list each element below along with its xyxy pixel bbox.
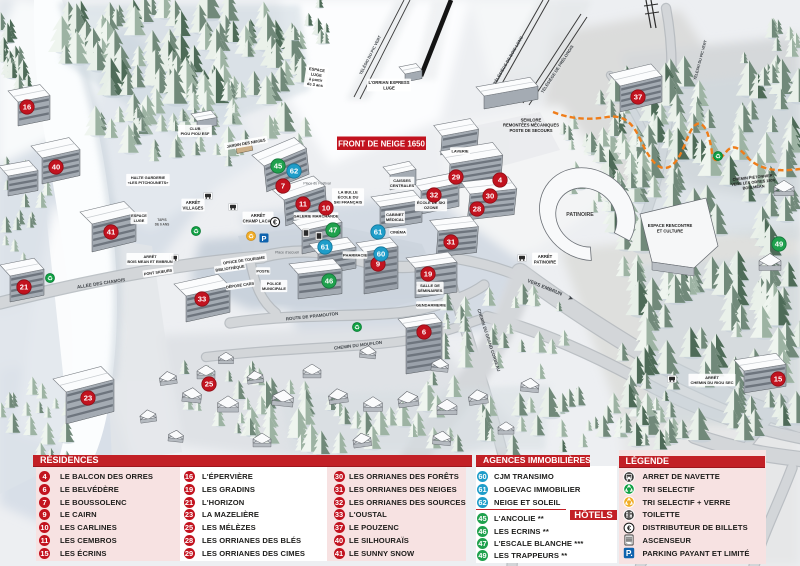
svg-text:MÉDICAL: MÉDICAL (386, 217, 405, 222)
svg-text:MUNICIPALE: MUNICIPALE (262, 286, 286, 291)
svg-text:♻: ♻ (248, 234, 254, 241)
svg-text:SÉMINAIRES: SÉMINAIRES (418, 288, 443, 293)
svg-text:CINÉMA: CINÉMA (390, 230, 406, 235)
svg-text:OZONE: OZONE (424, 205, 439, 210)
svg-text:LUGE: LUGE (134, 218, 145, 223)
svg-text:46: 46 (325, 277, 333, 286)
svg-text:P: P (262, 234, 267, 243)
svg-text:7: 7 (281, 182, 285, 191)
svg-text:POSTE: POSTE (256, 269, 270, 274)
svg-text:VILLAGES: VILLAGES (183, 205, 204, 210)
svg-text:«LES PITCHOUNETS»: «LES PITCHOUNETS» (128, 180, 169, 185)
svg-text:CHAMP LACAS: CHAMP LACAS (243, 218, 274, 223)
svg-text:ET CULTURE: ET CULTURE (657, 228, 683, 233)
svg-text:40: 40 (52, 163, 60, 172)
svg-text:Place du Festival: Place du Festival (303, 182, 331, 186)
svg-text:♻: ♻ (715, 154, 721, 161)
svg-text:LUGE: LUGE (383, 85, 395, 90)
svg-text:60: 60 (377, 250, 385, 259)
svg-text:47: 47 (329, 226, 337, 235)
svg-text:€: € (627, 523, 631, 532)
svg-text:15: 15 (774, 375, 783, 384)
svg-text:37: 37 (634, 93, 642, 102)
svg-text:11: 11 (299, 200, 308, 209)
svg-text:23: 23 (84, 394, 92, 403)
svg-text:DE 6 ANS: DE 6 ANS (155, 222, 170, 226)
svg-text:6: 6 (422, 328, 426, 337)
svg-text:CHEMIN DU RIOU SEC: CHEMIN DU RIOU SEC (690, 380, 733, 385)
svg-text:POSTE DE SECOURS: POSTE DE SECOURS (509, 128, 552, 133)
svg-text:PATINOIRE: PATINOIRE (534, 259, 556, 264)
svg-text:29: 29 (452, 173, 460, 182)
svg-text:GALERIE MARCHANDE: GALERIE MARCHANDE (293, 214, 338, 219)
svg-text:33: 33 (198, 295, 206, 304)
svg-text:BOIS MEAN ET EMBRUN: BOIS MEAN ET EMBRUN (127, 260, 172, 264)
svg-text:♻: ♻ (47, 276, 53, 283)
svg-text:32: 32 (430, 191, 438, 200)
svg-text:21: 21 (20, 283, 29, 292)
svg-text:19: 19 (424, 270, 432, 279)
svg-text:25: 25 (205, 380, 214, 389)
svg-text:PATINOIRE: PATINOIRE (566, 212, 594, 218)
svg-text:GENDARMERIE: GENDARMERIE (416, 303, 446, 308)
svg-text:SKI FRANÇAIS: SKI FRANÇAIS (334, 200, 363, 205)
svg-text:Place d'accueil: Place d'accueil (275, 251, 299, 255)
svg-text:61: 61 (321, 243, 330, 252)
svg-text:€: € (273, 220, 277, 227)
svg-text:16: 16 (23, 103, 31, 112)
svg-text:P.: P. (626, 548, 633, 558)
svg-text:♻: ♻ (354, 325, 360, 332)
svg-text:61: 61 (374, 228, 383, 237)
svg-text:28: 28 (473, 205, 481, 214)
svg-text:CENTRALES: CENTRALES (390, 183, 415, 188)
svg-text:62: 62 (290, 167, 298, 176)
svg-text:PHARMACIE: PHARMACIE (343, 253, 368, 258)
svg-text:LAVERIE: LAVERIE (451, 149, 468, 154)
svg-text:FRONT DE NEIGE 1650: FRONT DE NEIGE 1650 (338, 140, 425, 149)
svg-text:10: 10 (322, 204, 330, 213)
svg-text:30: 30 (486, 192, 494, 201)
svg-text:49: 49 (775, 240, 783, 249)
svg-text:ARRÊT: ARRÊT (143, 254, 157, 259)
svg-text:31: 31 (447, 238, 456, 247)
svg-text:♻: ♻ (193, 229, 199, 236)
svg-text:41: 41 (107, 228, 116, 237)
svg-text:45: 45 (274, 162, 283, 171)
svg-text:PIOU PIOU ESF: PIOU PIOU ESF (181, 131, 210, 136)
